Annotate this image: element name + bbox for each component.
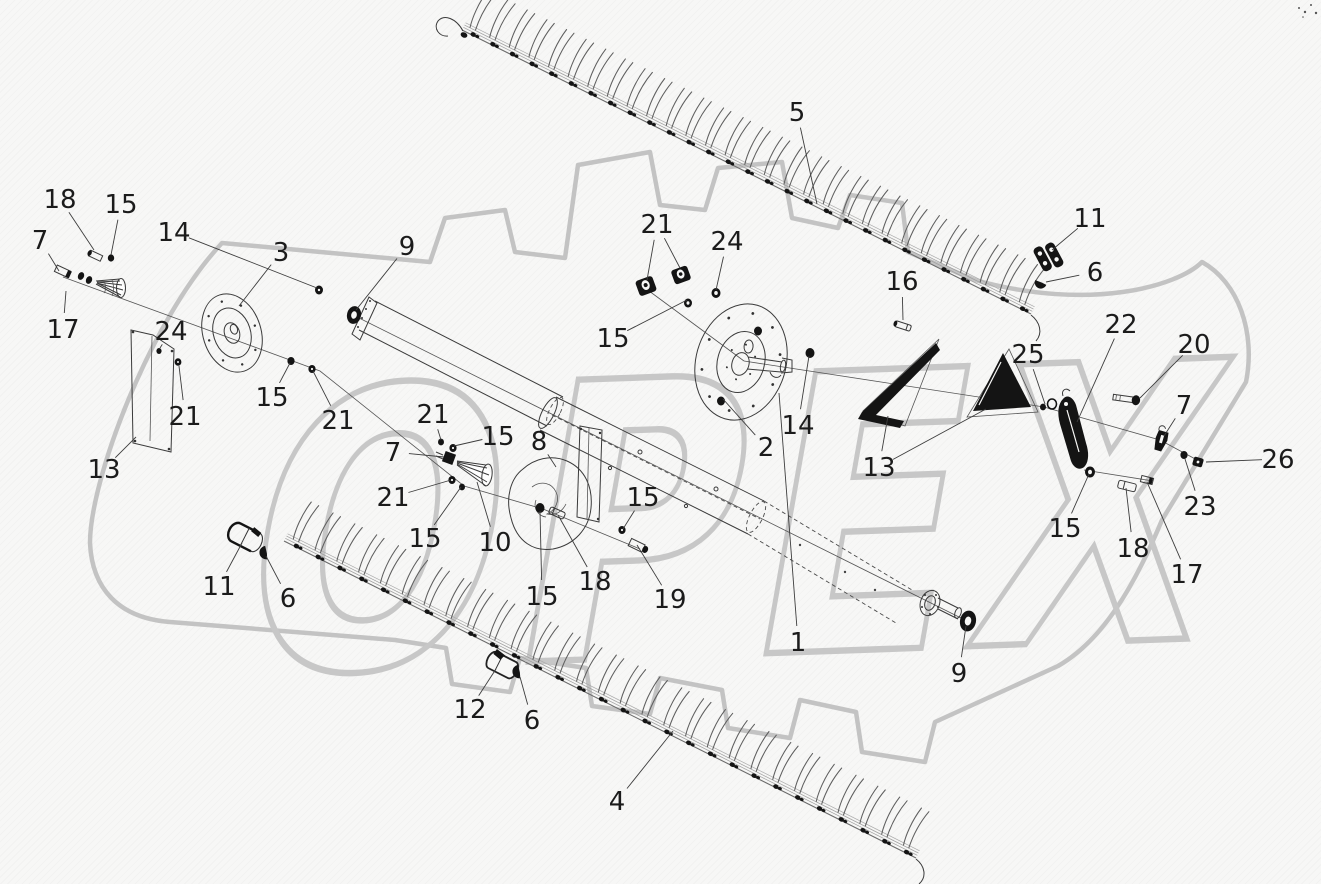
part-number-label: 2 <box>758 433 775 463</box>
part-number-label: 13 <box>862 453 895 483</box>
flange-disc-3 <box>192 286 272 380</box>
lower-tine-bar-ends <box>916 859 924 884</box>
part-number-label: 15 <box>408 524 441 554</box>
part-number-label: 7 <box>1176 391 1193 421</box>
diagram-canvas: OPEX <box>0 0 1321 884</box>
part-number-label: 14 <box>157 218 190 248</box>
gear-watermark: OPEX <box>90 152 1274 764</box>
part-number-label: 12 <box>453 695 486 725</box>
washer-21-mid-left <box>308 365 315 373</box>
part-number-label: 19 <box>653 585 686 615</box>
part-number-label: 15 <box>1048 514 1081 544</box>
part-number-label: 22 <box>1104 310 1137 340</box>
part-number-label: 9 <box>399 232 416 262</box>
part-number-label: 17 <box>1170 560 1203 590</box>
callout-14: 14 <box>157 218 317 288</box>
part-number-label: 7 <box>32 226 49 256</box>
part-number-label: 4 <box>609 787 626 817</box>
part-number-label: 15 <box>525 582 558 612</box>
part-number-label: 14 <box>781 411 814 441</box>
callout-9: 9 <box>356 232 415 310</box>
part-number-label: 21 <box>168 402 201 432</box>
callout-21: 21 <box>640 210 680 280</box>
washer-15-left <box>108 254 114 261</box>
part-number-label: 10 <box>478 528 511 558</box>
part-number-label: 11 <box>202 572 235 602</box>
part-number-label: 21 <box>321 406 354 436</box>
part-number-label: 23 <box>1183 492 1216 522</box>
part-number-label: 3 <box>273 238 290 268</box>
callout-24: 24 <box>710 227 743 290</box>
part-number-label: 15 <box>255 383 288 413</box>
callout-18: 18 <box>43 185 94 250</box>
part-number-label: 18 <box>43 185 76 215</box>
nut-21-a <box>635 275 657 296</box>
strap-clamp-11 <box>1032 239 1065 274</box>
part-number-label: 15 <box>626 483 659 513</box>
corner-specks <box>1298 4 1317 18</box>
washer-21-left <box>175 358 182 366</box>
washer-14-left <box>315 286 323 295</box>
nut-21-b <box>670 265 691 285</box>
part-number-label: 21 <box>640 210 673 240</box>
callout-5: 5 <box>789 98 817 204</box>
part-number-label: 6 <box>524 706 541 736</box>
part-number-label: 16 <box>885 267 918 297</box>
callout-17: 17 <box>46 291 79 345</box>
exploded-parts-drawing: OPEX <box>0 0 1321 884</box>
part-number-label: 15 <box>104 190 137 220</box>
part-number-label: 5 <box>789 98 806 128</box>
part-number-label: 21 <box>416 400 449 430</box>
washer-15-mid <box>684 299 692 308</box>
part-number-label: 6 <box>280 584 297 614</box>
bolt-14-mid <box>806 348 815 358</box>
part-number-label: 9 <box>951 659 968 689</box>
washer-15-right <box>1085 467 1095 478</box>
part-number-label: 11 <box>1073 204 1106 234</box>
bolt-18-left <box>87 249 103 261</box>
part-number-label: 15 <box>481 422 514 452</box>
callout-7: 7 <box>32 226 59 271</box>
part-number-label: 7 <box>385 438 402 468</box>
part-number-label: 18 <box>1116 534 1149 564</box>
callout-24: 24 <box>154 317 187 348</box>
part-number-label: 18 <box>578 567 611 597</box>
part-number-label: 13 <box>87 455 120 485</box>
part-number-label: 26 <box>1261 445 1294 475</box>
washer-15-d <box>459 484 465 491</box>
part-number-label: 8 <box>531 427 548 457</box>
part-number-label: 24 <box>710 227 743 257</box>
bolt-15-mid-left <box>287 357 294 365</box>
washer-25 <box>1040 404 1046 411</box>
part-number-label: 21 <box>376 483 409 513</box>
bolt-24-left <box>156 348 161 354</box>
part-number-label: 20 <box>1177 330 1210 360</box>
part-number-label: 1 <box>790 628 807 658</box>
upper-tine-bar <box>462 0 1045 314</box>
part-number-label: 15 <box>596 324 629 354</box>
washer-23 <box>1180 451 1187 459</box>
part-number-label: 25 <box>1011 340 1044 370</box>
callout-15: 15 <box>104 190 137 255</box>
part-number-label: 17 <box>46 315 79 345</box>
callout-11: 11 <box>1052 204 1107 250</box>
part-number-label: 6 <box>1087 258 1104 288</box>
part-number-label: 24 <box>154 317 187 347</box>
callout-11: 11 <box>202 543 242 602</box>
